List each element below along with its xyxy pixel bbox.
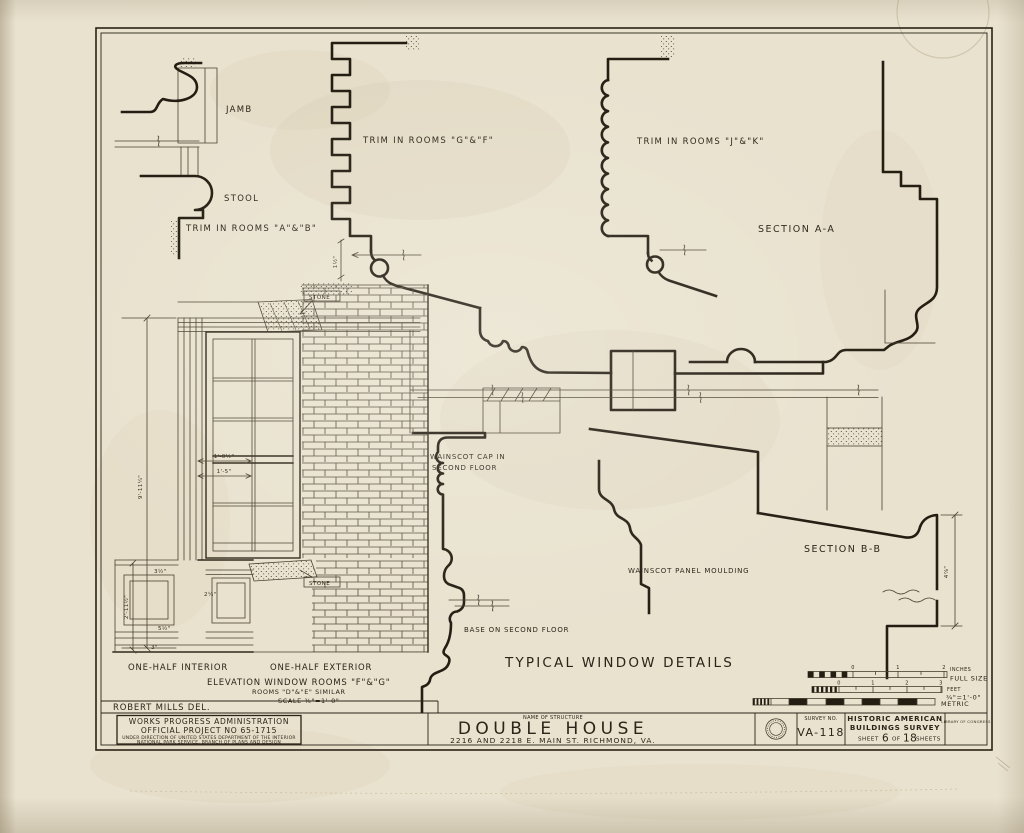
trim-ab-label: TRIM IN ROOMS "A"&"B" — [185, 224, 317, 234]
one-half-interior-label: ONE-HALF INTERIOR — [128, 663, 228, 673]
elevation-subtitle: ROOMS "D"&"E" SIMILAR — [252, 688, 346, 696]
jamb-section-lines — [827, 397, 882, 510]
trim-gf-label: TRIM IN ROOMS "G"&"F" — [362, 136, 494, 146]
wainscot-panel-right-outer — [212, 578, 250, 623]
sheet-word: SHEET — [858, 737, 879, 743]
break-marks — [478, 595, 493, 611]
structure-address: 2216 AND 2218 E. MAIN ST. RICHMOND, VA. — [450, 736, 656, 745]
survey-no-label: SURVEY NO. — [804, 716, 837, 722]
feet-tick-0: 0 — [837, 681, 841, 687]
metric-label: METRIC — [941, 700, 969, 708]
brick-field-lower — [312, 578, 428, 652]
scale-bar-inches — [808, 672, 947, 678]
dim-2quarter-label: 2¼" — [204, 592, 217, 598]
of-word: OF — [892, 737, 901, 743]
paper-stains — [90, 0, 1010, 820]
delineator-credit: ROBERT MILLS DEL. — [113, 703, 210, 713]
dim-arrow-line — [352, 253, 421, 258]
section-aa-label: SECTION A-A — [758, 224, 835, 235]
trim-jk-bottom — [608, 236, 648, 253]
dim-width2-label: 1'-5" — [217, 469, 232, 475]
survey-no-value: VA-118 — [797, 726, 844, 739]
break-mark — [403, 250, 404, 260]
baseboard-lines — [115, 632, 253, 645]
stipple-trim-end — [406, 35, 419, 50]
bb-break-marks — [883, 590, 935, 602]
trim-jk-top — [608, 59, 668, 80]
wpa-line-1: WORKS PROGRESS ADMINISTRATION — [129, 717, 289, 726]
wpa-line-4: NATIONAL PARK SERVICE, BRANCH OF PLANS A… — [137, 740, 281, 746]
section-bb-label: SECTION B-B — [804, 544, 882, 555]
inch-tick-1: 1 — [896, 665, 900, 671]
dim-wainscot-height-label: 2'-11½" — [123, 595, 130, 619]
wpa-line-2: OFFICIAL PROJECT NO 65-1715 — [141, 726, 277, 735]
org-line-1: HISTORIC AMERICAN — [847, 714, 942, 723]
dim-1half-label: 1½" — [332, 256, 339, 269]
elevation-title: ELEVATION WINDOW ROOMS "F"&"G" — [207, 678, 390, 688]
muntins-upper — [213, 378, 293, 421]
stone-band-section — [827, 428, 882, 446]
muntin-vertical — [252, 339, 255, 551]
sheet-title: TYPICAL WINDOW DETAILS — [504, 655, 734, 671]
habs-drawing-sheet: JAMB STOOL TRIM IN ROOMS "A"&"B" TRIM IN… — [0, 0, 1024, 833]
bb-lower — [887, 601, 937, 678]
embossed-stamp-circle — [897, 0, 989, 58]
stool-riser-lines — [181, 147, 198, 176]
feet-tick-2: 2 — [905, 681, 909, 687]
survey-stamp-inner — [770, 723, 783, 736]
feet-unit-label: FEET — [947, 687, 961, 693]
one-half-exterior-label: ONE-HALF EXTERIOR — [270, 663, 372, 673]
trim-jk-profile — [602, 36, 716, 296]
inch-tick-2: 2 — [942, 665, 946, 671]
wainscot-panel-label: WAINSCOT PANEL MOULDING — [628, 567, 749, 575]
wainscot-cap-label-2: SECOND FLOOR — [432, 464, 497, 472]
dim-window-height-label: 9'-11¼" — [138, 475, 144, 499]
stone-label-sill: STONE — [309, 581, 330, 587]
break-mark — [684, 245, 685, 255]
full-size-label: FULL SIZE — [950, 675, 988, 683]
elevation-scale-note: SCALE ¾"=1'-0" — [278, 697, 339, 705]
wainscot-cap-label-1: WAINSCOT CAP IN — [430, 453, 505, 461]
corner-fold-marks — [996, 757, 1010, 771]
sheet-number: 6 — [882, 733, 889, 745]
feet-tick-1: 1 — [871, 681, 875, 687]
wainscot-panel-right-inner — [217, 583, 245, 618]
break-mark — [158, 136, 159, 146]
scale-bar-feet — [812, 687, 942, 693]
inches-unit-label: INCHES — [950, 667, 971, 673]
trim-bead — [371, 260, 388, 277]
stipple-stool-wall — [171, 220, 178, 256]
scale-bar-metric — [753, 699, 935, 706]
brick-beside-sill — [316, 560, 428, 578]
trim-jk-connectors — [648, 253, 716, 296]
wall-lines — [115, 141, 199, 147]
brick-field-upper — [302, 285, 428, 558]
jamb-board-lines — [178, 68, 217, 143]
stone-sill — [249, 560, 317, 581]
scalloped-edge — [602, 80, 608, 236]
jamb-moulding-profile — [122, 63, 201, 112]
feet-tick-3: 3 — [939, 681, 943, 687]
stipple-jk-end — [661, 36, 675, 57]
dim-width1-label: 1'-0½" — [214, 453, 235, 460]
dim-3-label: 3" — [151, 645, 158, 651]
loc-line: LIBRARY OF CONGRESS — [941, 719, 991, 724]
survey-stamp-outer — [766, 719, 786, 739]
stone-label-top: STONE — [309, 295, 330, 301]
drawing-canvas: JAMB STOOL TRIM IN ROOMS "A"&"B" TRIM IN… — [0, 0, 1024, 833]
dim-3half-label: 3½" — [154, 568, 167, 575]
jamb-label: JAMB — [225, 105, 253, 115]
dim-5half-label: 5½" — [158, 625, 171, 632]
trim-jk-label: TRIM IN ROOMS "J"&"K" — [636, 137, 765, 147]
org-line-2: BUILDINGS SURVEY — [850, 723, 940, 732]
inch-tick-0: 0 — [851, 665, 855, 671]
stool-label: STOOL — [224, 194, 259, 204]
survey-stamp-ring — [768, 721, 785, 738]
sheets-word: SHEETS — [916, 737, 941, 743]
scale-bars — [753, 672, 947, 706]
dim-bb-label: 4⅞" — [944, 566, 950, 579]
base-second-label: BASE ON SECOND FLOOR — [464, 626, 569, 634]
